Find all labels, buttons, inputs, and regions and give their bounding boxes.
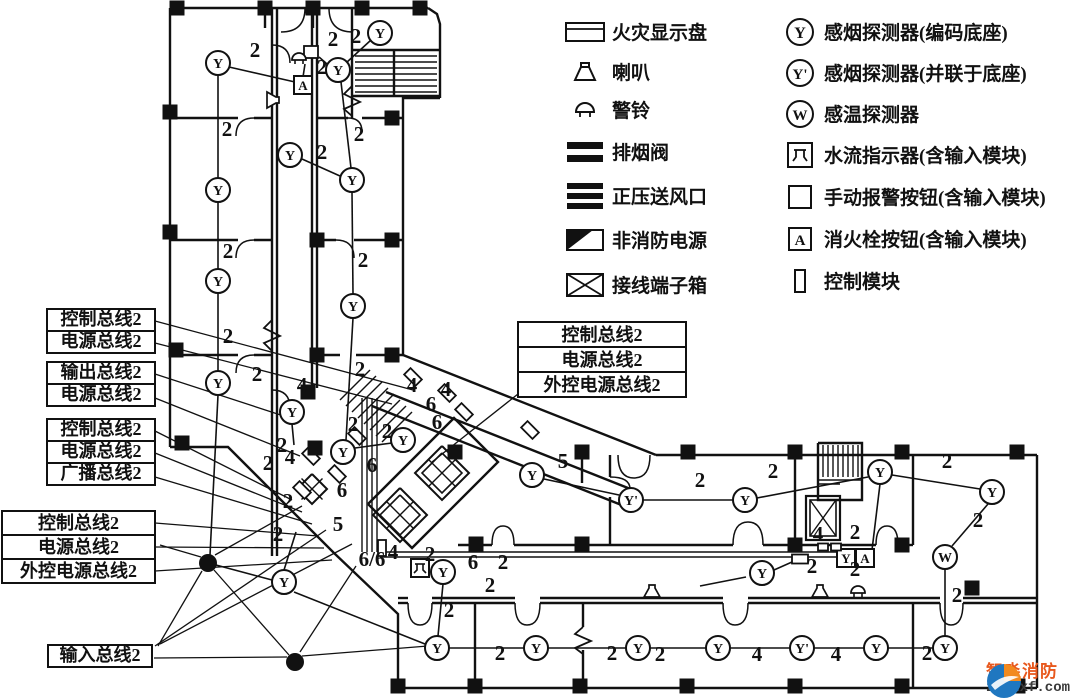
leader-line [158, 571, 202, 646]
smoke-detector-label: Y [213, 377, 223, 392]
column [163, 225, 178, 240]
door-arc [735, 603, 748, 625]
bus-label-text: 输出总线2 [61, 361, 142, 382]
wire [438, 584, 443, 636]
wire-count-label: 2 [283, 489, 294, 513]
smoke-exhaust-valve-icon [567, 149, 603, 155]
wire-count-label: 2 [223, 239, 234, 263]
wire-count-label: 2 [273, 522, 284, 546]
column [169, 343, 184, 358]
bus-label-text: 电源总线2 [38, 536, 119, 557]
heat-detector-label: W [938, 551, 952, 566]
column [310, 233, 325, 248]
door-arc [503, 526, 514, 545]
smoke-detector-label: Y [287, 406, 297, 421]
wire-count-label: 2 [425, 542, 436, 566]
column [258, 1, 273, 16]
wire-count-label: 2 [495, 641, 506, 665]
wire-count-label: 2 [768, 459, 779, 483]
smoke-detector-label: Y [531, 642, 541, 657]
smoke-detector-label: Y [875, 466, 885, 481]
column [306, 1, 321, 16]
speaker-symbol-shape [644, 585, 660, 597]
junction-dot [286, 653, 304, 671]
column [468, 679, 483, 694]
column [895, 679, 910, 694]
smoke-detector-label: Y [333, 64, 343, 79]
alarm-bell-icon [576, 103, 594, 117]
door-arc [723, 603, 735, 625]
column [308, 441, 323, 456]
bus-label-text: 电源总线2 [61, 440, 142, 461]
wire-count-label: 6 [367, 453, 378, 477]
leader-line [155, 560, 332, 571]
wire-count-label: 2 [973, 508, 984, 532]
column [788, 679, 803, 694]
smoke-detector-label: Y [871, 642, 881, 657]
wire [892, 475, 980, 489]
column [895, 445, 910, 460]
wire-count-label: 4 [407, 373, 418, 397]
legend-label: 喇叭 [612, 62, 650, 84]
column [680, 679, 695, 694]
smoke-exhaust-valve-icon [567, 142, 603, 162]
legend-label: 非消防电源 [612, 229, 707, 252]
legend-label: 排烟阀 [612, 141, 669, 164]
wall-break-symbol [575, 627, 591, 654]
alarm-bell-symbol [851, 586, 865, 593]
door-arc [492, 526, 503, 545]
floor-plan-page: YYYYYYYYYYYYYYYYYYYYYYYYYY'Y'WAAY2222222… [0, 0, 1080, 700]
terminal-box-icon [567, 274, 603, 296]
column [310, 348, 325, 363]
bus-label-text: 外控电源总线2 [544, 374, 661, 395]
wire-count-label: 2 [351, 24, 362, 48]
heat-detector-icon: W [793, 108, 808, 124]
wall [428, 8, 440, 98]
bus-label-text: 外控电源总线2 [20, 560, 137, 581]
wire-count-label: 2 [354, 122, 365, 146]
manual-alarm-button-icon [789, 186, 811, 208]
legend-label: 接线端子箱 [612, 274, 707, 297]
water-flow-indicator-icon [788, 143, 812, 167]
wire-count-label: 6/6 [359, 547, 386, 571]
smoke-detector-label: Y [940, 642, 950, 657]
leader-line [302, 646, 428, 656]
wall [386, 392, 638, 492]
pressurized-air-outlet-icon [567, 183, 603, 209]
smoke-detector-label: Y [347, 174, 357, 189]
hydrant-button-icon: A [795, 233, 806, 249]
control-module [831, 544, 841, 551]
smoke-detector-parallel-label: Y' [795, 642, 809, 657]
wire-count-label: 2 [850, 520, 861, 544]
bus-label-text: 电源总线2 [61, 383, 142, 404]
door-arc [876, 526, 887, 545]
bus-label-text: 电源总线2 [61, 330, 142, 351]
wire-count-label: 5 [558, 449, 569, 473]
speaker-symbol [644, 585, 660, 597]
column [1010, 445, 1025, 460]
smoke-detector-label: Y [740, 494, 750, 509]
hydrant-button-label: A [860, 551, 870, 566]
non-fire-power-icon [567, 230, 603, 250]
wire [774, 562, 792, 570]
manual-alarm-button-icon [789, 186, 811, 208]
wire-count-label: 4 [388, 540, 399, 564]
wire-count-label: 2 [807, 554, 818, 578]
wire-count-label: 2 [252, 362, 263, 386]
fire-display-panel-icon [566, 23, 604, 41]
column [575, 537, 590, 552]
damper-symbol [521, 421, 539, 439]
control-module-icon [795, 270, 805, 292]
wire [229, 67, 295, 82]
door-arc [281, 8, 305, 32]
wire [700, 577, 746, 586]
legend-label: 警铃 [612, 99, 650, 122]
smoke-detector-label: Y [432, 642, 442, 657]
wire-count-label: 6 [337, 478, 348, 502]
column [355, 1, 370, 16]
legend-label: 手动报警按钮(含输入模块) [824, 186, 1046, 209]
column [788, 538, 803, 553]
wire-count-label: 2 [942, 449, 953, 473]
wire [292, 424, 294, 445]
wire [352, 192, 353, 294]
water-flow-indicator-icon [788, 143, 812, 167]
alarm-bell-icon [576, 103, 594, 112]
smoke-detector-label: Y [213, 184, 223, 199]
smoke-detector-label: Y [348, 300, 358, 315]
column [170, 1, 185, 16]
column [681, 445, 696, 460]
door-arc [236, 118, 254, 136]
smoke-detector-icon: Y [794, 25, 806, 42]
wall [403, 98, 440, 355]
door-arc [515, 603, 527, 625]
speaker-symbol-shape [812, 585, 828, 597]
wire-count-label: 2 [382, 419, 393, 443]
wire-count-label: 2 [328, 27, 339, 51]
control-module [792, 555, 808, 564]
wire-count-label: 2 [444, 598, 455, 622]
wire-count-label: 2 [317, 55, 328, 79]
damper-symbol [293, 481, 311, 499]
wire-count-label: 2 [607, 641, 618, 665]
wire-count-label: 2 [355, 357, 366, 381]
wire-count-label: 2 [348, 412, 359, 436]
smoke-detector-label: Y [279, 576, 289, 591]
legend-label: 感温探测器 [824, 103, 920, 126]
wire-count-label: 2 [358, 248, 369, 272]
control-module-icon [795, 270, 805, 292]
wire-count-label: 4 [285, 445, 296, 469]
junction-dot [199, 554, 217, 572]
smoke-detector-label: Y [633, 642, 643, 657]
wire-count-label: 2 [952, 583, 963, 607]
wire-count-label: 2 [223, 324, 234, 348]
column [413, 1, 428, 16]
pressurized-air-outlet-icon [567, 189, 603, 193]
damper-symbol [455, 403, 473, 421]
legend-label: 感烟探测器(编码底座) [824, 21, 1008, 44]
smoke-detector-label: Y [398, 434, 408, 449]
wire-count-label: 2 [317, 140, 328, 164]
column [448, 445, 463, 460]
column [788, 445, 803, 460]
bus-label-text: 电源总线2 [562, 349, 643, 370]
wall [818, 443, 862, 500]
smoke-detector-label: Y [438, 566, 448, 581]
leader-line [154, 657, 287, 658]
wire-count-label: 4 [813, 522, 824, 546]
leader-line [155, 453, 302, 512]
wire-count-label: 5 [333, 512, 344, 536]
wire-count-label: 2 [222, 117, 233, 141]
door-arc [733, 522, 748, 545]
column [163, 105, 178, 120]
column [895, 538, 910, 553]
wire-count-label: 6 [432, 410, 443, 434]
bus-label-text: 控制总线2 [38, 512, 119, 533]
door-arc [336, 240, 354, 258]
wire-count-label: 4 [297, 373, 308, 397]
legend-label: 火灾显示盘 [612, 21, 707, 44]
smoke-detector-label: Y [987, 486, 997, 501]
fire-alarm-floor-plan: YYYYYYYYYYYYYYYYYYYYYYYYYY'Y'WAAY2222222… [0, 0, 1080, 700]
hydrant-button-label: A [298, 78, 308, 93]
wire-count-label: 2 [850, 557, 861, 581]
column [175, 436, 190, 451]
leader-line [155, 523, 318, 536]
legend-label: 正压送风口 [612, 185, 707, 208]
wire-count-label: 2 [485, 573, 496, 597]
column [391, 679, 406, 694]
smoke-detector-parallel-label: Y' [624, 494, 638, 509]
legend-label: 感烟探测器(并联于底座) [824, 62, 1027, 85]
watermark: 智淼消防 zmjaxf.com [986, 663, 1070, 696]
column [965, 581, 980, 596]
bus-label-text: 控制总线2 [562, 324, 643, 345]
bus-label-text: 控制总线2 [61, 418, 142, 439]
bus-label-text: 输入总线2 [60, 644, 141, 665]
smoke-detector-label: Y [713, 642, 723, 657]
column [385, 233, 400, 248]
wire-count-label: 4 [831, 642, 842, 666]
door-arc [527, 603, 540, 625]
column [573, 679, 588, 694]
wire-count-label: 4 [752, 642, 763, 666]
legend-label: 消火栓按钮(含输入模块) [824, 228, 1027, 251]
column [385, 111, 400, 126]
pressurized-air-outlet-icon [567, 183, 603, 209]
wire-count-label: 6 [468, 550, 479, 574]
wire-count-label: 2 [263, 451, 274, 475]
smoke-detector-label: Y [213, 57, 223, 72]
door-arc [272, 45, 290, 63]
speaker-icon [575, 63, 595, 80]
wire-count-label: 2 [250, 38, 261, 62]
door-arc [748, 522, 763, 545]
smoke-detector-label: Y [757, 567, 767, 582]
speaker-symbol [812, 585, 828, 597]
bus-label-text: 控制总线2 [61, 308, 142, 329]
column [385, 348, 400, 363]
wire-count-label: 2 [655, 642, 666, 666]
wire [294, 592, 425, 644]
door-arc [236, 240, 254, 258]
smoke-detector-label: Y [213, 275, 223, 290]
fire-display-panel-icon [566, 23, 604, 41]
speaker-icon [575, 63, 595, 80]
wire-count-label: 4 [441, 377, 452, 401]
smoke-detector-label: Y [285, 149, 295, 164]
smoke-detector-label: Y [375, 27, 385, 42]
door-arc [420, 603, 432, 625]
door-arc [408, 603, 420, 625]
pressurized-air-outlet-icon [567, 199, 603, 203]
watermark-logo-icon [986, 663, 1022, 699]
door-arc [634, 455, 650, 478]
legend-label: 控制模块 [824, 270, 901, 293]
smoke-detector-label: Y [527, 469, 537, 484]
column [575, 445, 590, 460]
smoke-detector-label: Y [338, 446, 348, 461]
leader-line [300, 566, 356, 652]
wire-count-label: 2 [498, 550, 509, 574]
bus-label-text: 广播总线2 [61, 462, 142, 483]
door-arc [618, 455, 634, 478]
wire-count-label: 2 [695, 468, 706, 492]
wire-count-label: 2 [922, 641, 933, 665]
alarm-bell-symbol [292, 53, 306, 60]
smoke-detector-parallel-icon: Y' [793, 67, 808, 83]
legend-label: 水流指示器(含输入模块) [824, 144, 1027, 167]
